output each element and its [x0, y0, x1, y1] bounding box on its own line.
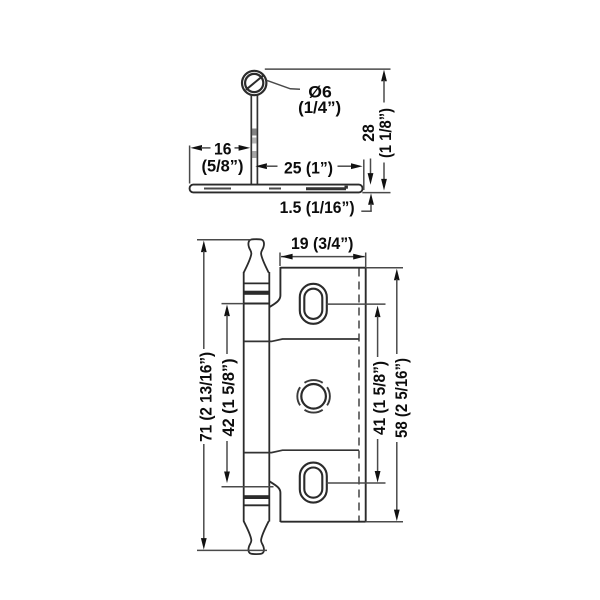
svg-text:28: 28 — [360, 124, 378, 142]
svg-text:(1/4”): (1/4”) — [298, 99, 341, 117]
svg-text:25 (1”): 25 (1”) — [284, 159, 333, 177]
svg-text:19 (3/4”): 19 (3/4”) — [291, 235, 354, 253]
svg-text:(5/8”): (5/8”) — [202, 157, 244, 175]
svg-text:42 (1 5/8”): 42 (1 5/8”) — [220, 359, 238, 437]
svg-text:(1 1/8”): (1 1/8”) — [377, 108, 395, 158]
svg-text:16: 16 — [214, 141, 232, 159]
svg-text:58 (2 5/16”): 58 (2 5/16”) — [393, 358, 411, 438]
svg-text:1.5 (1/16”): 1.5 (1/16”) — [280, 199, 355, 217]
svg-text:71 (2 13/16”): 71 (2 13/16”) — [198, 352, 216, 442]
svg-text:41 (1 5/8”): 41 (1 5/8”) — [371, 361, 389, 435]
